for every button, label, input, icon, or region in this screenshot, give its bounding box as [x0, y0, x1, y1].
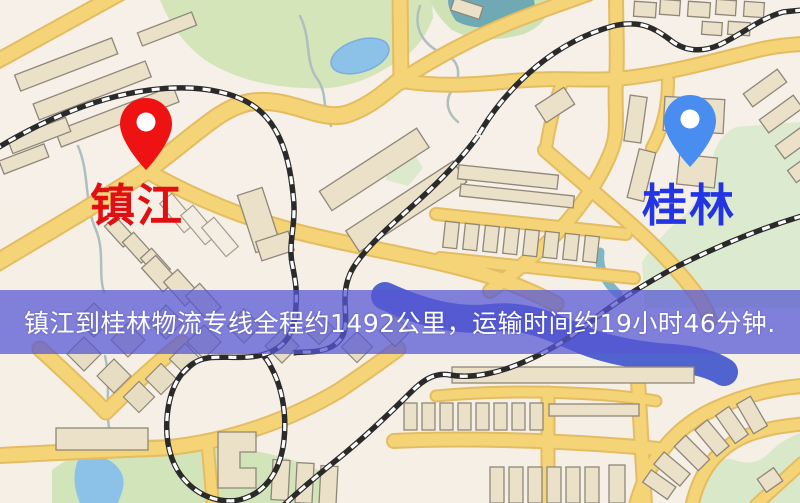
route-info-text: 镇江到桂林物流专线全程约1492公里，运输时间约19小时46分钟.: [24, 304, 776, 340]
map-canvas[interactable]: 镇江 桂林: [0, 0, 800, 503]
origin-pin-hole: [137, 113, 156, 132]
origin-label: 镇江: [90, 179, 184, 232]
destination-pin-hole: [681, 110, 700, 129]
logistics-route-map: 镇江 桂林 镇江到桂林物流专线全程约1492公里，运输时间约19小时46分钟.: [0, 0, 800, 503]
destination-label: 桂林: [642, 179, 736, 232]
route-info-banner: 镇江到桂林物流专线全程约1492公里，运输时间约19小时46分钟.: [0, 290, 800, 354]
